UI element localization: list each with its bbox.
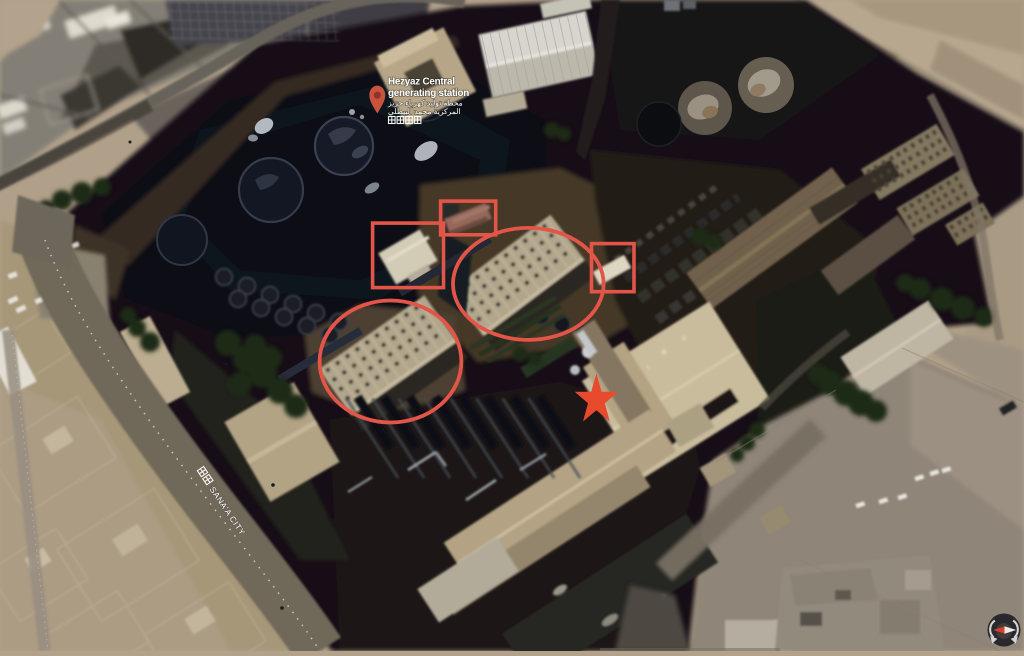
svg-text:المركزية محمد البيطلي: المركزية محمد البيطلي [388, 107, 461, 116]
svg-text:generating station: generating station [388, 88, 469, 99]
svg-text:Hezyaz Central: Hezyaz Central [388, 77, 455, 88]
